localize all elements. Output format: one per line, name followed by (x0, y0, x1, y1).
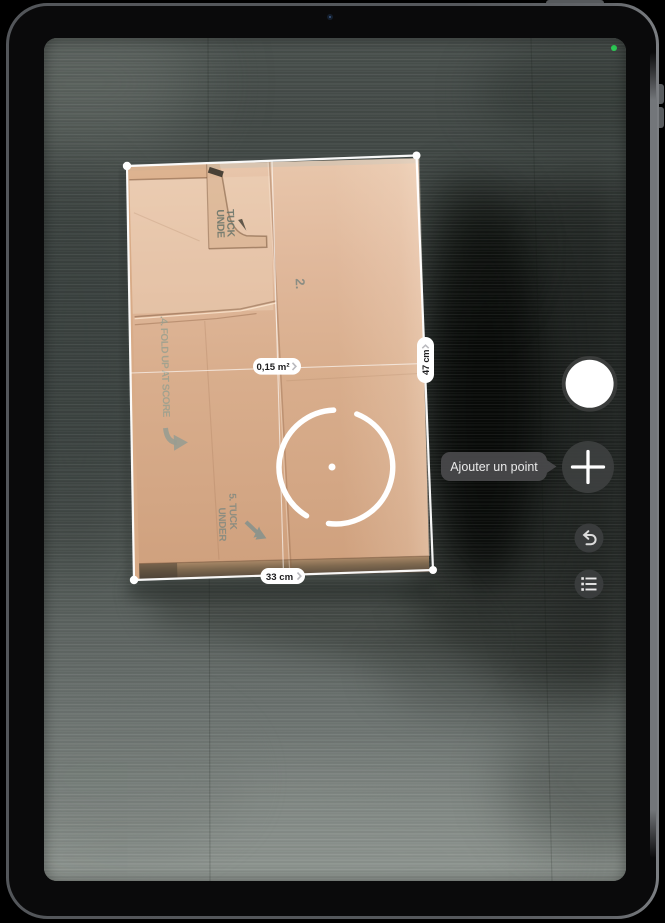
svg-text:UNDER: UNDER (216, 507, 228, 542)
svg-text:0,15 m²: 0,15 m² (256, 362, 289, 373)
svg-text:33 cm: 33 cm (266, 572, 293, 583)
svg-text:Ajouter un point: Ajouter un point (450, 460, 538, 474)
svg-text:47 cm: 47 cm (421, 350, 431, 375)
svg-text:TUCK: TUCK (224, 209, 237, 238)
svg-text:2.: 2. (293, 278, 308, 289)
